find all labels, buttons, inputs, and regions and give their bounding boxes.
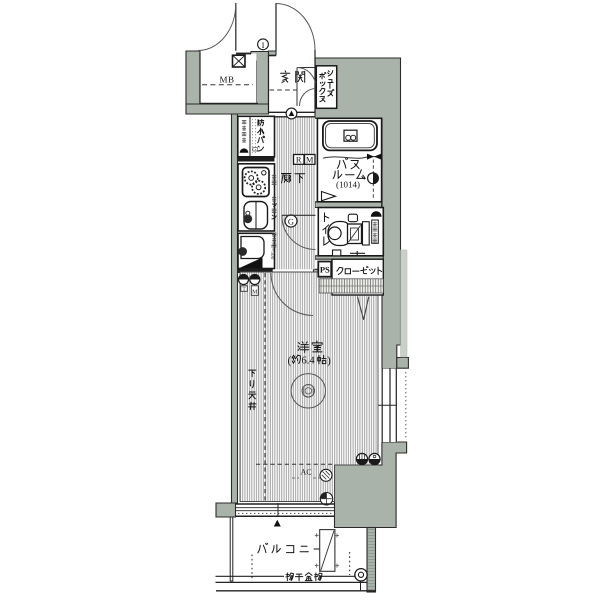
svg-text:(: ( [288,355,292,367]
svg-text:I: I [262,40,265,50]
svg-text:): ) [327,355,331,367]
svg-text:M: M [306,155,314,165]
svg-text:MB: MB [219,75,234,85]
svg-text:PS: PS [320,265,330,275]
svg-text:M: M [252,290,258,296]
svg-text:6.4: 6.4 [302,356,316,367]
svg-text:(1014): (1014) [336,180,360,190]
svg-text:G: G [288,217,294,227]
svg-text:R: R [296,155,302,165]
svg-text:AC: AC [300,468,311,477]
svg-text:L=500: L=500 [269,245,275,260]
